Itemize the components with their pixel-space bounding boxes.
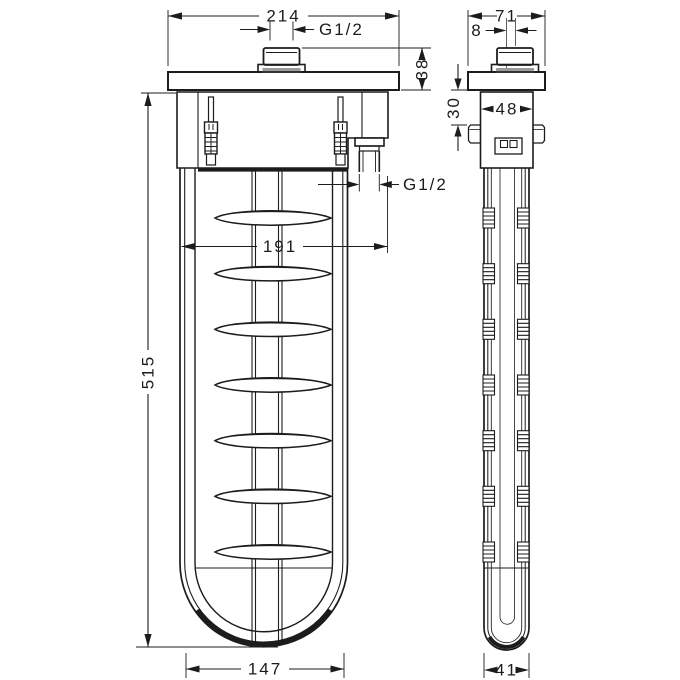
side-wall-plate (468, 72, 545, 90)
front-top-connector (258, 48, 305, 73)
dim-tube-depth: 41 (484, 653, 529, 680)
dim-flange-depth: 30 (444, 64, 467, 151)
technical-drawing-canvas: 214 G1/2 38 515 (0, 0, 680, 680)
dim-outlet-span-label: 191 (263, 237, 297, 256)
dim-overall-width-label: 214 (266, 7, 300, 26)
dim-outlet-thread: G1/2 (318, 174, 448, 194)
dim-side-width-label: 71 (495, 7, 518, 26)
side-top-connector (492, 48, 539, 73)
dim-flange-depth-label: 30 (444, 96, 463, 119)
dim-flange-height-label: 38 (413, 58, 432, 81)
front-rib-fins (215, 211, 331, 559)
front-wall-plate (168, 72, 399, 90)
front-outlet-fitting (355, 138, 384, 172)
dim-body-width: 147 (186, 653, 344, 679)
dim-body-width-label: 147 (248, 660, 282, 679)
dim-tube-depth-label: 41 (495, 661, 518, 680)
dim-outlet-thread-label: G1/2 (403, 175, 448, 194)
side-view: 71 8 30 48 41 (444, 7, 545, 680)
front-view: 214 G1/2 38 515 (136, 7, 448, 679)
dim-top-thread: G1/2 (240, 20, 364, 41)
side-tube-body (484, 168, 529, 650)
dim-top-thread-label: G1/2 (319, 20, 364, 39)
dim-overall-height-label: 515 (139, 355, 158, 389)
dim-body-depth-label: 48 (496, 100, 519, 119)
dim-overall-height: 515 (136, 93, 278, 647)
drawing-svg: 214 G1/2 38 515 (0, 0, 680, 680)
dim-thread-offset-label: 8 (471, 21, 482, 40)
